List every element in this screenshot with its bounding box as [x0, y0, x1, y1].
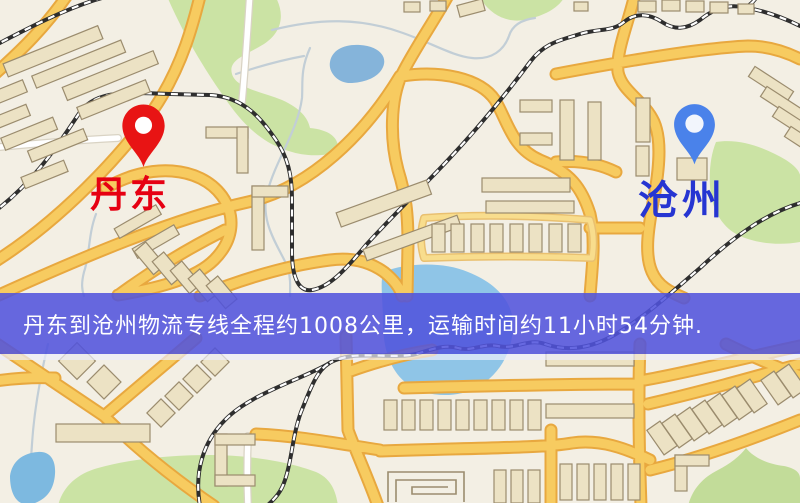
- origin-pin-icon: [121, 100, 166, 172]
- origin-pin-shape: [122, 105, 164, 167]
- destination-pin-icon: [668, 103, 721, 166]
- map-container: 丹东 沧州 丹东到沧州物流专线全程约1008公里，运输时间约11小时54分钟.: [0, 0, 800, 503]
- destination-pin-hole: [685, 115, 703, 133]
- origin-label: 丹东: [90, 176, 170, 213]
- destination-pin-shape: [674, 104, 715, 164]
- map-background: [0, 0, 800, 503]
- route-info-text: 丹东到沧州物流专线全程约1008公里，运输时间约11小时54分钟.: [23, 308, 703, 340]
- route-info-banner: 丹东到沧州物流专线全程约1008公里，运输时间约11小时54分钟.: [0, 293, 800, 354]
- destination-label: 沧州: [638, 181, 726, 221]
- origin-pin-hole: [135, 117, 152, 134]
